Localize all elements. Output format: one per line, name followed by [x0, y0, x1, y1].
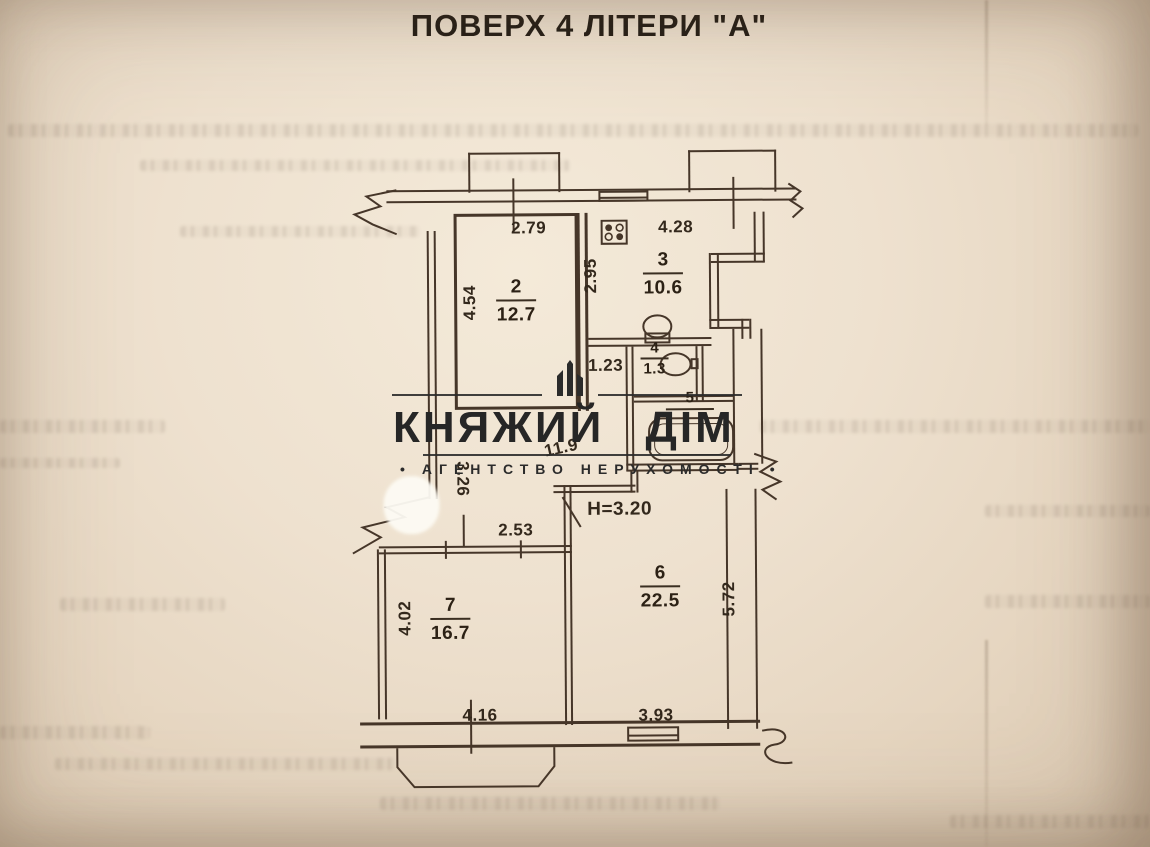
- room-2-number: 2: [496, 277, 537, 301]
- window-symbol: [627, 726, 679, 741]
- room-2-label: 2 12.7: [476, 277, 556, 326]
- dim-bottom-left: 4.16: [445, 705, 515, 725]
- room-7-number: 7: [430, 596, 471, 620]
- watermark-rule: [423, 454, 731, 456]
- wall: [709, 253, 720, 327]
- wall-break-icon: [348, 184, 398, 238]
- dimension-tick: [732, 177, 734, 229]
- window-symbol: [598, 190, 648, 201]
- room-4-label: 4 1.3: [632, 340, 676, 377]
- dim-room6-right: 5.72: [719, 569, 739, 629]
- wall: [741, 319, 751, 339]
- balcony-bottom: [395, 745, 559, 790]
- wall: [377, 549, 387, 719]
- room-7-area: 16.7: [431, 623, 470, 645]
- ceiling-height-label: Н=3.20: [574, 498, 666, 521]
- dim-top-left: 2.79: [494, 218, 564, 238]
- room-2-area: 12.7: [497, 304, 536, 326]
- dim-bottom-right: 3.93: [621, 705, 691, 725]
- room-3-label: 3 10.6: [623, 250, 703, 299]
- room-3-area: 10.6: [643, 277, 682, 299]
- room-4-area: 1.3: [643, 360, 665, 377]
- watermark-rule: [598, 394, 742, 396]
- wall: [427, 231, 438, 499]
- room-6-label: 6 22.5: [620, 563, 700, 612]
- stove-icon: [601, 220, 628, 245]
- erasure-mark: [383, 476, 439, 534]
- room-6-area: 22.5: [641, 590, 680, 612]
- room-7-label: 7 16.7: [410, 596, 490, 645]
- dimension-tick: [520, 540, 522, 558]
- room-3-number: 3: [642, 250, 683, 274]
- wall-break-icon: [784, 181, 810, 219]
- dim-room7-door: 2.53: [481, 520, 551, 540]
- dimension-tick: [463, 515, 465, 547]
- room-6-number: 6: [640, 563, 681, 587]
- bullet-icon: •: [770, 461, 782, 477]
- watermark-tagline: • АГЕНТСТВО НЕРУХОМОСТІ •: [400, 461, 782, 477]
- watermark-brand: КНЯЖИЙ ДІМ: [393, 403, 735, 453]
- wall: [711, 253, 765, 263]
- dim-room3-left: 2.95: [581, 246, 601, 306]
- castle-logo-icon: [549, 356, 591, 398]
- wall: [360, 720, 760, 749]
- watermark-rule: [392, 394, 542, 396]
- dim-hall-left: 3.26: [452, 449, 472, 509]
- dimension-tick: [445, 541, 447, 559]
- wall: [732, 329, 763, 464]
- watermark-tagline-text: АГЕНТСТВО НЕРУХОМОСТІ: [422, 461, 760, 477]
- bullet-icon: •: [400, 461, 412, 477]
- wall-break-icon: [756, 724, 798, 770]
- scanned-floor-plan-page: ПОВЕРХ 4 ЛІТЕРИ "А": [0, 0, 1150, 847]
- room-4-number: 4: [640, 340, 668, 359]
- dim-top-right: 4.28: [641, 217, 711, 237]
